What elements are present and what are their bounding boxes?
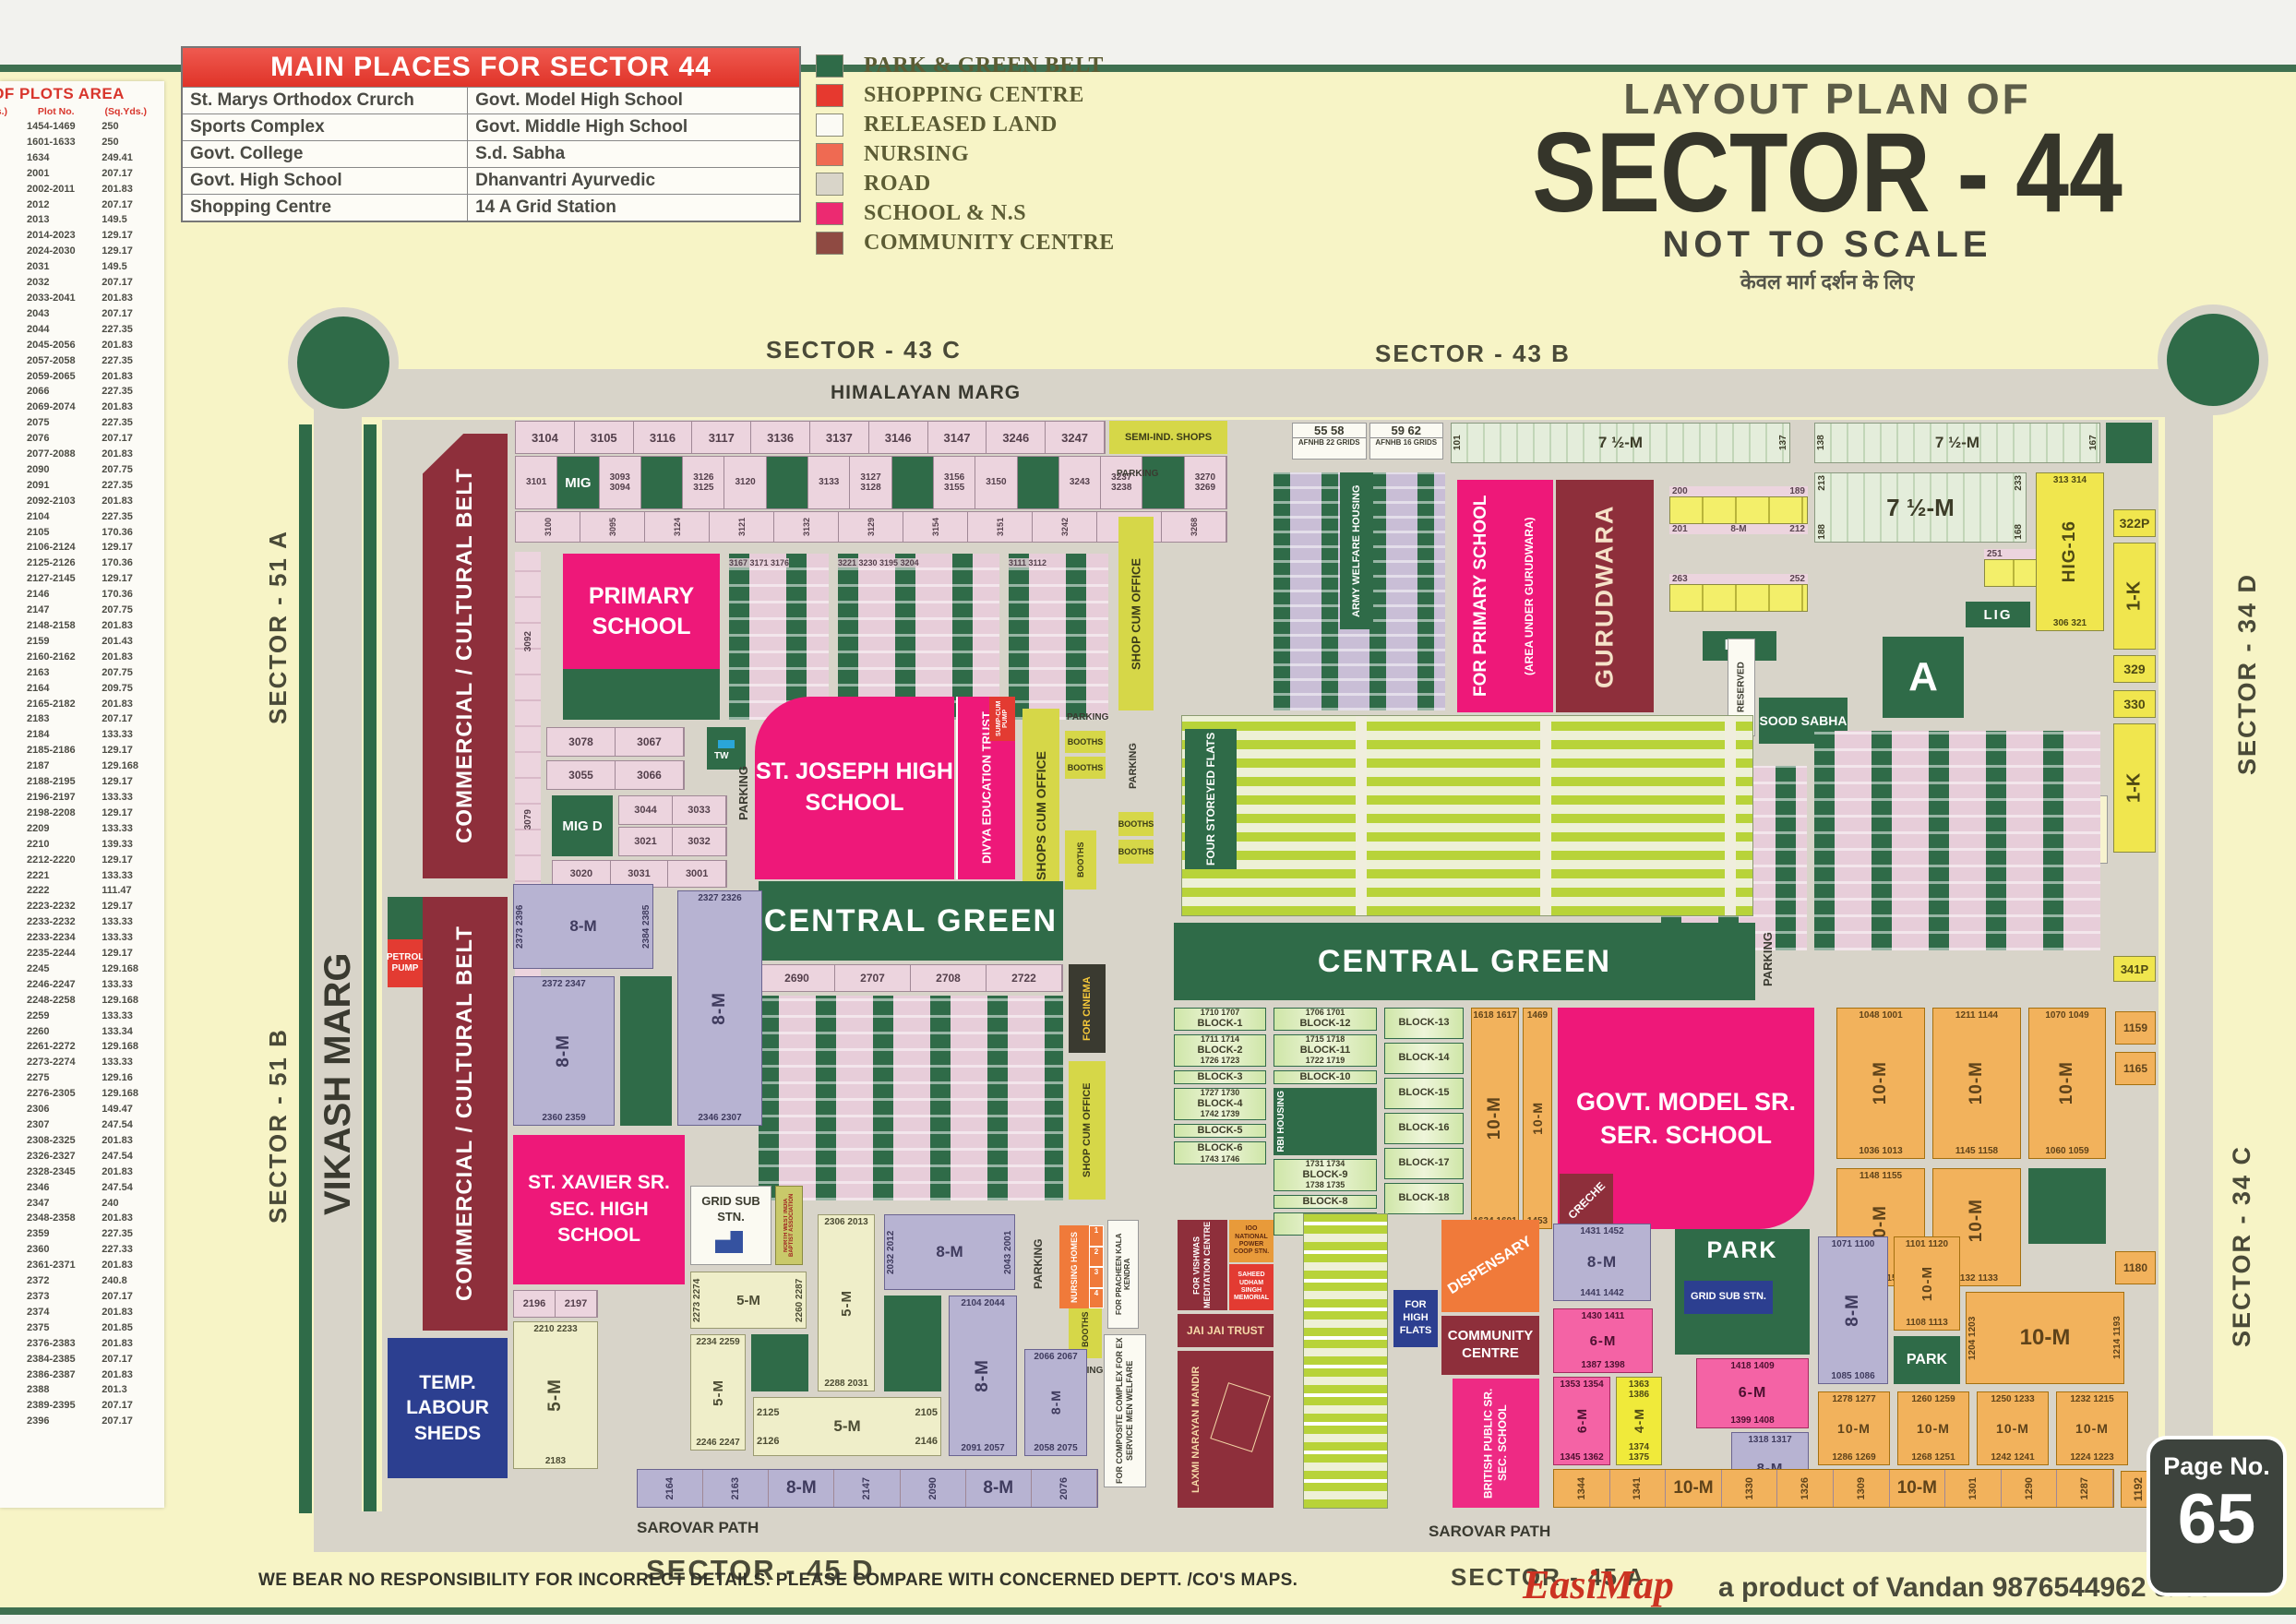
- strip-cell: 8-M: [769, 1470, 834, 1507]
- plot-grid-3111: 3111 3112: [1009, 554, 1108, 720]
- plot-row: 2125-2126170.36: [21, 555, 161, 571]
- plot-number-cell: 3129: [839, 512, 903, 542]
- label-parking-top1: PARKING: [1117, 469, 1158, 479]
- label-sector-51b: SECTOR - 51 B: [264, 987, 293, 1264]
- label-himalayan-marg: HIMALAYAN MARG: [831, 382, 1021, 404]
- block-a: A: [1883, 637, 1964, 718]
- plot-row: 214-227186.59: [0, 291, 21, 306]
- strip-1k-upper: 1-K: [2113, 543, 2156, 650]
- mig-cell: 3126 3125: [683, 457, 724, 508]
- plot-row: 198201.83: [0, 275, 21, 291]
- plot-row: 12512493.41: [0, 977, 21, 993]
- plot-row: 2033-2041201.83: [21, 291, 161, 306]
- plot-row: 1250249.11: [0, 961, 21, 977]
- strip-cell: 1309: [1834, 1470, 1890, 1507]
- plot-row: 1015-1024250: [0, 462, 21, 478]
- plot-row: 2359227.35: [21, 1226, 161, 1242]
- plot-row: 2233-2234133.33: [21, 930, 161, 946]
- strip-cell: 2164: [638, 1470, 703, 1507]
- strip-10m-1: 1618 1617 10-M 1634 1601: [1471, 1008, 1519, 1229]
- legend-item: COMMUNITY CENTRE: [816, 231, 1115, 256]
- housing-block: BLOCK-10: [1274, 1070, 1377, 1084]
- plot-row: 166186.5: [0, 212, 21, 228]
- lav-r2: 2372 23478-M2360 2359: [513, 976, 615, 1126]
- block-central-green-right: CENTRAL GREEN: [1174, 923, 1755, 1000]
- main-places-row: Govt. High SchoolDhanvantri Ayurvedic: [183, 167, 799, 194]
- plot-number-cell: 2722: [987, 965, 1062, 991]
- plot-number-cell: 3078: [547, 728, 616, 756]
- label-parking-stjoseph: PARKING: [736, 720, 750, 867]
- plot-row: 2346247.54: [21, 1180, 161, 1196]
- strip-cell: 1341: [1610, 1470, 1667, 1507]
- plot-row: 2275129.16: [21, 1070, 161, 1086]
- brand-easimap: EasiMap: [1523, 1561, 1674, 1608]
- housing-block: 1715 1718BLOCK-111722 1719: [1274, 1034, 1377, 1067]
- strip-seven-half-2: 1387 ½-M167: [1814, 423, 2100, 463]
- legend-swatch-icon: [816, 202, 843, 225]
- label-sector-34c: SECTOR - 34 C: [2228, 1089, 2256, 1403]
- block-for-cinema: FOR CINEMA: [1069, 964, 1106, 1053]
- plot-row: 2104227.35: [21, 509, 161, 525]
- plot-number-cell: 3247: [1046, 422, 1105, 453]
- plot-row: 2165-2182201.83: [21, 697, 161, 712]
- strip-cell: 1301: [1945, 1470, 2002, 1507]
- block-primary-school: PRIMARY SCHOOL: [563, 554, 720, 669]
- mig-cell: [641, 457, 683, 508]
- plot-number-cell: 3066: [616, 761, 684, 789]
- legend-swatch-icon: [816, 54, 843, 78]
- plot-row: 331-340502.32: [0, 384, 21, 400]
- plot-row: 302509.68: [0, 322, 21, 338]
- plot-row: 1061-1069250: [0, 571, 21, 587]
- plot-row: 1279-1285250: [0, 1086, 21, 1102]
- flats-stripes-col: [1303, 1213, 1388, 1509]
- plot-row: 1203-1204249.41: [0, 899, 21, 914]
- plot-row: 2012207.17: [21, 197, 161, 213]
- plot-number-cell: 3044: [619, 796, 673, 824]
- orange-d1: 1101 112010-M1108 1113: [1894, 1236, 1960, 1331]
- plot-row: 2384-2385207.17: [21, 1352, 161, 1367]
- plot-row: 1048-1049249.41: [0, 525, 21, 541]
- main-places-title: MAIN PLACES FOR SECTOR 44: [183, 48, 799, 87]
- row-2196: 21962197: [513, 1290, 598, 1318]
- label-sector-43c: SECTOR - 43 C: [766, 336, 962, 364]
- strip-seven-half-3: 213188 7 ½-M 233168: [1814, 472, 2027, 543]
- plot-row: 2235-2244129.17: [21, 946, 161, 961]
- plot-row: 107-136186.59: [0, 150, 21, 166]
- plot-row: 2308-2325201.83: [21, 1133, 161, 1149]
- plot-row: 1454-1469250: [21, 119, 161, 135]
- block-booths-2: BOOTHS: [1118, 840, 1154, 864]
- plot-row: 139-153186.59: [0, 182, 21, 197]
- block-saheed: SAHEED UDHAM SINGH MEMORIAL: [1229, 1264, 1274, 1310]
- plot-row: 92-103186.59: [0, 119, 21, 135]
- plot-row: 1233249.41: [0, 930, 21, 946]
- block-dispensary: DISPENSARY: [1441, 1220, 1539, 1312]
- lig-yellow-row-icon: [1669, 496, 1808, 524]
- strip-1k-lower: 1-K: [2113, 723, 2156, 853]
- plot-row: 1326-1344250: [0, 1226, 21, 1242]
- plot-number-cell: 3246: [987, 422, 1046, 453]
- plot-row: 2075227.35: [21, 415, 161, 431]
- plot-number-cell: 2708: [911, 965, 987, 991]
- plot-row: 1161-1192250: [0, 853, 21, 868]
- plot-row: 2223-2232129.17: [21, 899, 161, 914]
- plot-row: 2127-2145129.17: [21, 571, 161, 587]
- orange-a1: 1048 100110-M1036 1013: [1836, 1008, 1925, 1159]
- mig-cell: [1142, 457, 1184, 508]
- plot-grid-3221: 3221 3230 3195 3204: [838, 554, 999, 720]
- row-2690: 2690270727082722: [759, 964, 1063, 992]
- label-sector-51a: SECTOR - 51 A: [264, 498, 293, 757]
- row-3055: 30553066: [546, 760, 685, 790]
- plot-row: 2326-2327247.54: [21, 1149, 161, 1164]
- plot-number-cell: 3020: [553, 861, 611, 887]
- plot-row: 1441-1442199.41: [0, 1492, 21, 1508]
- plot-row: 1601-1633250: [21, 135, 161, 150]
- strip-shop-cum-office-2: SHOP CUM OFFICE: [1069, 1061, 1106, 1200]
- plot-row: 1026-1032250: [0, 494, 21, 509]
- housing-block: BLOCK-14: [1384, 1043, 1464, 1074]
- title-line4-hindi: केवल मार्ग दर्शन के लिए: [1458, 268, 2196, 295]
- plot-row: 2032207.17: [21, 275, 161, 291]
- plot-row: 2024-2030129.17: [21, 244, 161, 259]
- orange-e2: 1260 125910-M1268 1251: [1897, 1391, 1969, 1465]
- plot-row: 2014-2023129.17: [21, 228, 161, 244]
- strip-cell: 1290: [2002, 1470, 2058, 1507]
- cream-h1: 2273 22745-M2260 2287: [690, 1272, 807, 1329]
- plot-number-cell: 3021: [619, 828, 673, 855]
- plot-row: 230-232186.59: [0, 306, 21, 322]
- plot-row: 1205-1232250: [0, 914, 21, 930]
- plot-number-cell: 3147: [928, 422, 987, 453]
- plot-row: 1002-1013250: [0, 431, 21, 447]
- block-mig-d: MIG D: [552, 795, 613, 856]
- plot-row: 2013149.5: [21, 212, 161, 228]
- plot-number-cell: 3079: [523, 809, 533, 830]
- strip-10m-2: 1469 10-M 1453: [1523, 1008, 1552, 1229]
- nursing-number: 3: [1089, 1267, 1104, 1288]
- plot-row: 2031149.5: [21, 259, 161, 275]
- plot-row: 2372240.8: [21, 1273, 161, 1289]
- legend-swatch-icon: [816, 143, 843, 166]
- mig-cell: 3156 3155: [934, 457, 975, 508]
- mig-cell: [1018, 457, 1059, 508]
- mig-cell: [767, 457, 808, 508]
- plot-row: 2198-2208129.17: [21, 806, 161, 821]
- plot-row: 2059-2065201.83: [21, 369, 161, 385]
- green-strip-8m: [620, 976, 672, 1126]
- greenbelt-left-1: [299, 424, 312, 1513]
- plot-grid-3167: 3167 3171 3176: [729, 554, 829, 720]
- plot-row: 1145249.5: [0, 743, 21, 758]
- label-vikash-marg: VIKASH MARG: [317, 877, 359, 1292]
- block-lig-2: LIG: [1966, 602, 2030, 627]
- plot-row: 2212-2220129.17: [21, 853, 161, 868]
- plot-row: 2187129.168: [21, 758, 161, 774]
- plot-row: 2233-2232133.33: [21, 914, 161, 930]
- plot-row: 1087-1099200: [0, 634, 21, 650]
- housing-block: BLOCK-13: [1384, 1008, 1464, 1039]
- plot-number-cell: 2197: [556, 1291, 597, 1317]
- plot-row: 2221133.33: [21, 868, 161, 884]
- greenbelt-left-2: [364, 424, 377, 1513]
- plot-row: 1306-1309250: [0, 1149, 21, 1164]
- block-grid-sub-stn-left: GRID SUB STN.: [690, 1186, 771, 1265]
- plot-number-cell: 3242: [1033, 512, 1097, 542]
- petrol-pump-green: [388, 897, 423, 939]
- plot-row: 1365-1373150: [0, 1320, 21, 1336]
- plot-row: 2388201.3: [21, 1382, 161, 1398]
- brand-vandan: a product of Vandan 9876544962 & 63: [1718, 1572, 2212, 1604]
- plots-col-header: (Sq.Yds.): [91, 106, 161, 117]
- plot-number-cell: 3105: [575, 422, 634, 453]
- plot-row: 1310-1316200: [0, 1164, 21, 1180]
- page-number-box: Page No. 65: [2147, 1436, 2287, 1596]
- plot-row: 2276-2305129.168: [21, 1086, 161, 1102]
- primary-school-green: [563, 669, 720, 720]
- plot-row: 2105170.36: [21, 525, 161, 541]
- plot-row: 2328-2345201.83: [21, 1164, 161, 1180]
- plot-row: 2066227.35: [21, 384, 161, 400]
- plot-row: 1252-1258250: [0, 993, 21, 1009]
- plot-row: 2001207.17: [21, 166, 161, 182]
- plot-row: 1193249.41: [0, 868, 21, 884]
- easimap-sector-44-page: DETAILS OF PLOTS AREA Plot No.(Sq.Yds.)P…: [0, 0, 2296, 1624]
- plot-row: 2106-2124129.17: [21, 540, 161, 555]
- cell-330: 330: [2113, 690, 2156, 718]
- label-parking-mid1: PARKING: [1128, 729, 1139, 803]
- orange-c1: 1204 120310-M1214 1193: [1966, 1292, 2124, 1384]
- plot-row: 1378-1388100: [0, 1367, 21, 1383]
- block-jai-jai-trust: JAI JAI TRUST: [1178, 1314, 1274, 1347]
- strip-cell: 2076: [1032, 1470, 1097, 1507]
- plot-row: 2259133.33: [21, 1009, 161, 1024]
- plot-row: 2273-2274133.33: [21, 1055, 161, 1070]
- plot-row: 1149-1150250: [0, 790, 21, 806]
- mig-row-blocks: 3101MIG3093 30943126 3125312031333127 31…: [515, 456, 1227, 509]
- plot-row: 2306149.47: [21, 1102, 161, 1117]
- lav-p2: 1431 14528-M1441 1442: [1553, 1224, 1651, 1301]
- main-places-table: MAIN PLACES FOR SECTOR 44 St. Marys Orth…: [181, 46, 801, 222]
- plot-row: 1146-1147250: [0, 758, 21, 774]
- cream-h2: 21252126 5-M 21052146: [753, 1397, 941, 1456]
- plot-number-cell: 3031: [611, 861, 669, 887]
- lav-r1: 2373 23968-M2384 2385: [513, 884, 653, 969]
- plot-row: 1100199.41: [0, 650, 21, 665]
- label-sarovar-path-1: SAROVAR PATH: [637, 1519, 759, 1537]
- plot-number-cell: 3032: [673, 828, 726, 855]
- plot-number-cell: 3033: [673, 796, 726, 824]
- plot-row: 1025249.41: [0, 478, 21, 494]
- housing-block: 1731 1734BLOCK-91738 1735: [1274, 1159, 1377, 1191]
- mig-row-numbers-top: 3104310531163117313631373146314732463247: [515, 421, 1106, 454]
- plot-row: 1319-1324200: [0, 1196, 21, 1212]
- block-park-small: PARK: [1894, 1336, 1960, 1384]
- legend-item: SHOPPING CENTRE: [816, 83, 1115, 108]
- plot-row: 1317-1318199.41: [0, 1180, 21, 1196]
- plot-row: 1102-1108250: [0, 681, 21, 697]
- plots-table-headers: Plot No.(Sq.Yds.)Plot No.(Sq.Yds.): [0, 103, 161, 119]
- block-booths-3: BOOTHS: [1065, 731, 1106, 753]
- plot-row: 1151249.41: [0, 806, 21, 821]
- block-nwiba: NORTH WEST INDIA BAPTIST ASSOCIATION: [775, 1186, 803, 1265]
- legend-item: NURSING: [816, 142, 1115, 167]
- plot-number-cell: 3055: [547, 761, 616, 789]
- plot-row: 2148-2158201.83: [21, 618, 161, 634]
- block-british-public: BRITISH PUBLIC SR. SEC. SCHOOL: [1453, 1379, 1539, 1508]
- pink-p1: 1430 14116-M1387 1398: [1553, 1308, 1653, 1373]
- strip-cell: 1287: [2057, 1470, 2113, 1507]
- cream-v2: 2306 20135-M2288 2031: [818, 1214, 875, 1391]
- cream-v1: 2234 22595-M2246 2247: [690, 1334, 746, 1451]
- mig-cell: 3237 3238: [1101, 457, 1142, 508]
- plot-row: 2147207.75: [21, 603, 161, 618]
- block-commercial-belt-lower: COMMERCIAL / CULTURAL BELT: [423, 897, 508, 1331]
- plot-row: 1070249.41: [0, 587, 21, 603]
- plot-row: 2091227.35: [21, 478, 161, 494]
- plot-number-cell: 3137: [810, 422, 869, 453]
- cell-1180: 1180: [2115, 1251, 2156, 1284]
- plot-row: 2246-2247133.33: [21, 977, 161, 993]
- row-3078: 30783067: [546, 727, 685, 757]
- block-grid-col-b: 1706 1701BLOCK-121715 1718BLOCK-111722 1…: [1274, 1008, 1377, 1239]
- plot-row: 1374-1375149.41: [0, 1336, 21, 1352]
- plot-row: 2160-2162201.83: [21, 650, 161, 665]
- plot-number-cell: 3116: [634, 422, 693, 453]
- plot-row: 303-328502.32: [0, 338, 21, 353]
- strip-cell: 8-M: [966, 1470, 1032, 1507]
- main-places-row: Govt. CollegeS.d. Sabha: [183, 140, 799, 167]
- strip-cell: 10-M: [1890, 1470, 1946, 1507]
- plot-row: 2069-2074201.83: [21, 400, 161, 415]
- plot-number-cell: 3117: [692, 422, 751, 453]
- block-booths-4: BOOTHS: [1065, 757, 1106, 779]
- block-sump-pump: SUMP-CUM PUMP: [989, 697, 1015, 741]
- plot-row: 2183207.17: [21, 711, 161, 727]
- plot-number-cell: 3151: [968, 512, 1033, 542]
- cell-1165: 1165: [2115, 1052, 2156, 1085]
- plot-row: 188207.55: [0, 259, 21, 275]
- plot-row: 2348-2358201.83: [21, 1211, 161, 1226]
- plot-row: 2386-2387201.83: [21, 1367, 161, 1383]
- cell-341p: 341P: [2113, 956, 2156, 982]
- plot-number-cell: 3100: [516, 512, 580, 542]
- road-right: [2165, 388, 2213, 1536]
- plot-row: 2163207.75: [21, 665, 161, 681]
- legend-item: RELEASED LAND: [816, 113, 1115, 137]
- green-block-2: [884, 1296, 941, 1391]
- mandir-outline-icon: [1210, 1382, 1270, 1452]
- plot-row: 1113-1131250: [0, 697, 21, 712]
- legend-swatch-icon: [816, 232, 843, 255]
- block-community-centre: COMMUNITY CENTRE: [1441, 1316, 1539, 1375]
- housing-block: 1711 1714BLOCK-21726 1723: [1174, 1034, 1266, 1067]
- plot-row: 2375201.85: [21, 1320, 161, 1336]
- lig-group-2: 263252: [1669, 574, 1808, 612]
- block-grid-col-c: BLOCK-13BLOCK-14BLOCK-15BLOCK-16BLOCK-17…: [1384, 1008, 1464, 1218]
- strip-cell: 1330: [1722, 1470, 1778, 1507]
- strip-10m-long: 1344134110-M13301326130910-M130112901287: [1553, 1469, 2114, 1508]
- grid-sub-stn-icon: [715, 1231, 743, 1253]
- plot-row: 1194-1202250: [0, 883, 21, 899]
- plot-row: 2196-2197133.33: [21, 790, 161, 806]
- plot-number-cell: 3001: [668, 861, 726, 887]
- road-himalayan: [332, 369, 2196, 417]
- plots-area-table: DETAILS OF PLOTS AREA Plot No.(Sq.Yds.)P…: [0, 81, 164, 1508]
- plot-row: 2209133.33: [21, 821, 161, 837]
- plot-row: 2361-2371201.83: [21, 1258, 161, 1273]
- plot-row: 167189.46: [0, 228, 21, 244]
- plot-number-cell: 3124: [645, 512, 710, 542]
- plot-row: 2159201.43: [21, 634, 161, 650]
- block-hig-16: 313 314 HIG-16 306 321: [2036, 472, 2104, 631]
- lig-yellow-row-icon: [1669, 584, 1808, 612]
- green-square-5m: [751, 1334, 808, 1391]
- block-semi-ind-shops: SEMI-IND. SHOPS: [1109, 421, 1227, 454]
- plot-row: 1148249.41: [0, 774, 21, 790]
- seven-half-cap: [2106, 423, 2152, 463]
- lav-r3: 2327 23268-M2346 2307: [677, 890, 762, 1126]
- plot-row: 2076207.17: [21, 431, 161, 447]
- housing-block: BLOCK-18: [1384, 1183, 1464, 1214]
- plot-row: 2374201.83: [21, 1305, 161, 1320]
- plot-number-cell: 2707: [835, 965, 911, 991]
- tw-blue-icon: [718, 740, 735, 748]
- cell-322p: 322P: [2113, 509, 2156, 537]
- mig-cell: [892, 457, 934, 508]
- plots-rows-right: 1454-14692501601-16332501634249.41200120…: [21, 119, 161, 1508]
- orange-e4: 1232 121510-M1224 1223: [2056, 1391, 2128, 1465]
- legend-item: ROAD: [816, 172, 1115, 197]
- mig-cell: 3150: [975, 457, 1017, 508]
- plot-number-cell: 2690: [759, 965, 835, 991]
- block-booths-5: BOOTHS: [1065, 830, 1096, 890]
- plot-row: 1158249.41: [0, 837, 21, 853]
- cream-v3: 2210 22335-M2183: [513, 1321, 598, 1469]
- plot-number-cell: 3095: [580, 512, 645, 542]
- plot-number-cell: 3067: [616, 728, 684, 756]
- plot-row: 2261-2272129.168: [21, 1039, 161, 1055]
- housing-block: BLOCK-61743 1746: [1174, 1141, 1266, 1164]
- plot-row: 1001249.41: [0, 415, 21, 431]
- plot-row: 1409149.41: [0, 1429, 21, 1445]
- plot-row: 1270-1276250: [0, 1055, 21, 1070]
- plot-row: 154-165186.59: [0, 197, 21, 213]
- plot-row: 2164209.75: [21, 681, 161, 697]
- plot-row: 2077-2088201.83: [21, 447, 161, 462]
- plot-number-cell: 3146: [869, 422, 928, 453]
- plot-number-cell: 3132: [774, 512, 839, 542]
- plot-row: 1134-1144250: [0, 727, 21, 743]
- label-sector-43b: SECTOR - 43 B: [1375, 340, 1571, 368]
- plot-row: 1305256: [0, 1133, 21, 1149]
- plot-row: 1430-1431149.41: [0, 1461, 21, 1476]
- nursing-number: 4: [1089, 1288, 1104, 1309]
- housing-block: 1727 1730BLOCK-41742 1739: [1174, 1088, 1266, 1120]
- afnhb-blocks: 55 58 AFNHB 22 GRIDS 59 62 AFNHB 16 GRID…: [1292, 423, 1443, 460]
- plot-row: 2184133.33: [21, 727, 161, 743]
- plot-row: 1345-1352150: [0, 1242, 21, 1258]
- mig-cell: MIG: [557, 457, 599, 508]
- plot-number-cell: 3092: [523, 631, 533, 651]
- block-gurudwara: GURUDWARA: [1556, 480, 1654, 712]
- plot-row: 1400-1408150: [0, 1414, 21, 1429]
- mig-cell: 3120: [724, 457, 766, 508]
- label-sarovar-path-2: SAROVAR PATH: [1429, 1522, 1550, 1541]
- plot-grid-right-upper: [1814, 731, 2100, 950]
- grid-sub-stn-tag: GRID SUB STN.: [1684, 1281, 1773, 1314]
